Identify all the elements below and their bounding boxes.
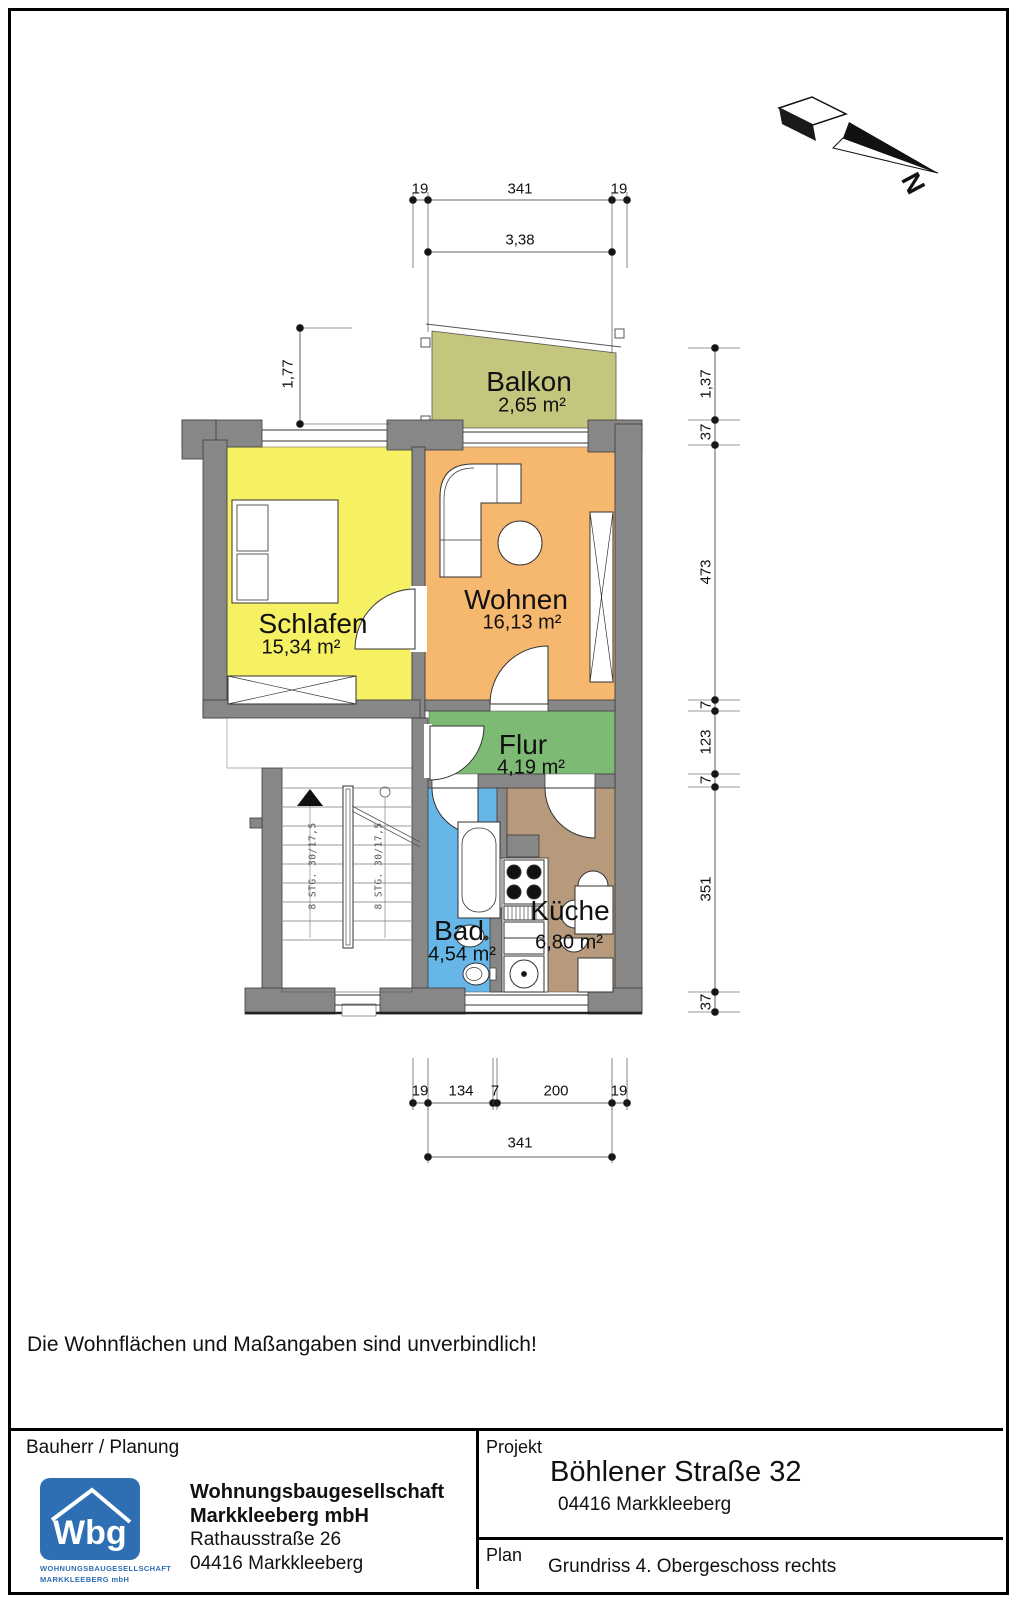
plan-name: Grundriss 4. Obergeschoss rechts: [548, 1556, 836, 1578]
room-area-balkon: 2,65 m²: [498, 395, 566, 418]
dim-bot-19-left: 19: [412, 1083, 429, 1100]
dim-right-37b: 37: [698, 994, 715, 1011]
dim-right-7a: 7: [698, 701, 715, 709]
disclaimer-note: Die Wohnflächen und Maßangaben sind unve…: [27, 1333, 537, 1357]
dim-bot-7: 7: [491, 1083, 499, 1100]
stair-up-arrow: [297, 789, 323, 806]
dim-top-19-right: 19: [611, 181, 628, 198]
wbg-logo: Wbg: [40, 1478, 140, 1560]
wbg-logo-graphic: Wbg: [40, 1478, 140, 1560]
company-name-line1: Wohnungsbaugesellschaft: [190, 1480, 444, 1504]
dim-right-37a: 37: [698, 424, 715, 441]
projekt-name: Böhlener Straße 32: [550, 1456, 801, 1489]
room-label-balkon: Balkon: [486, 366, 572, 398]
room-area-schlafen: 15,34 m²: [262, 637, 341, 660]
north-arrow-icon: [779, 97, 938, 173]
company-city: 04416 Markkleeberg: [190, 1552, 444, 1576]
room-label-bad: Bad: [434, 915, 484, 947]
dim-bot-341: 341: [507, 1135, 532, 1152]
room-area-flur: 4,19 m²: [497, 757, 565, 780]
projekt-city: 04416 Markkleeberg: [558, 1494, 731, 1516]
bed-pillow: [237, 505, 268, 551]
bathtub: [458, 822, 500, 918]
dim-top-19-left: 19: [412, 181, 429, 198]
dim-right-7b: 7: [698, 776, 715, 784]
dim-left-177: 1,77: [280, 359, 297, 388]
bauherr-label: Bauherr / Planung: [26, 1437, 179, 1459]
logo-subline2: MARKKLEEBERG mbH: [40, 1575, 129, 1584]
stair-label-flight1: 8 STG. 30/17,5: [308, 822, 319, 909]
dim-bot-19-right: 19: [611, 1083, 628, 1100]
projekt-label: Projekt: [486, 1437, 542, 1458]
kitchen-cabinet: [578, 958, 613, 992]
dim-bot-134: 134: [448, 1083, 473, 1100]
logo-text: Wbg: [53, 1514, 127, 1552]
logo-subline1: WOHNUNGSBAUGESELLSCHAFT: [40, 1564, 171, 1573]
dim-right-473: 473: [698, 559, 715, 584]
bed-pillow: [237, 554, 268, 600]
titleblock-top-line: [8, 1428, 1003, 1431]
wardrobe-schlafen: [228, 676, 356, 704]
round-table: [498, 521, 542, 565]
dim-bot-200: 200: [543, 1083, 568, 1100]
titleblock-vertical-divider: [476, 1428, 479, 1589]
washing-machine: [504, 956, 544, 992]
plan-label: Plan: [486, 1545, 522, 1566]
dim-right-351: 351: [698, 876, 715, 901]
room-area-bad: 4,54 m²: [428, 944, 496, 967]
dim-top-341: 341: [507, 181, 532, 198]
dim-right-137: 1,37: [698, 369, 715, 398]
stairs: [282, 768, 420, 992]
company-block: Wohnungsbaugesellschaft Markkleeberg mbH…: [190, 1480, 444, 1576]
dim-right-123: 123: [698, 729, 715, 754]
room-area-wohnen: 16,13 m²: [483, 612, 562, 635]
company-name-line2: Markkleeberg mbH: [190, 1504, 444, 1528]
room-label-kueche: Küche: [530, 895, 609, 927]
stair-railing: [343, 786, 353, 948]
stair-label-flight2: 8 STG. 30/17,5: [374, 822, 385, 909]
cabinet-wohnen: [590, 512, 613, 682]
room-label-schlafen: Schlafen: [259, 608, 368, 640]
drawing-sheet: N Balkon 2,65 m² Schlafen 15,34 m² Wohne…: [0, 0, 1014, 1600]
entrance-notch: [342, 1004, 376, 1016]
landing-outline: [227, 718, 262, 768]
room-area-kueche: 6,80 m²: [535, 932, 603, 955]
titleblock-plan-divider: [476, 1537, 1003, 1540]
dim-top-338: 3,38: [505, 232, 534, 249]
company-street: Rathausstraße 26: [190, 1528, 444, 1552]
